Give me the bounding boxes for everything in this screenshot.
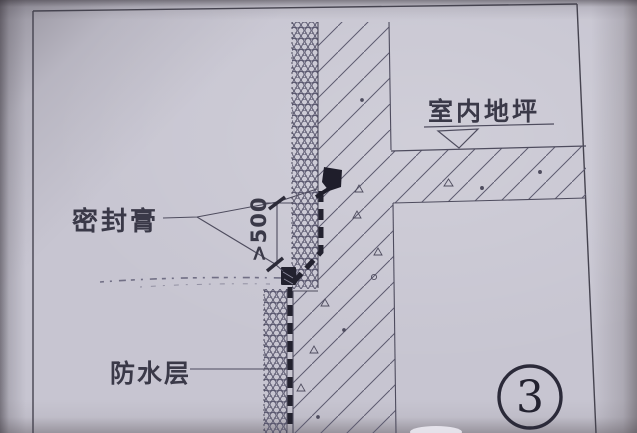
detail-number-text: 3 — [516, 372, 544, 423]
detail-circle: 3 — [499, 366, 561, 428]
waterproof-label: 防水层 — [110, 359, 191, 388]
page-border-top — [33, 4, 577, 11]
joint-dotted-line — [100, 278, 282, 288]
indoor-floor-label: 室内地坪 — [428, 97, 540, 126]
insulation-strip-upper — [292, 22, 318, 289]
sealant-joint-block — [281, 267, 296, 285]
level-symbol — [424, 124, 554, 148]
sealant-label: 密封膏 — [72, 206, 159, 237]
insulation-strip-lower — [264, 289, 287, 433]
page-border-right — [577, 4, 596, 433]
detail-drawing: >500 3 密封膏 室内地坪 防水层 — [0, 0, 637, 433]
floor-slab-section — [391, 146, 586, 203]
construction-detail-photo: >500 3 密封膏 室内地坪 防水层 — [0, 0, 637, 433]
dimension-500: >500 — [247, 197, 293, 271]
photo-highlight — [410, 426, 462, 433]
dimension-label: >500 — [247, 197, 271, 262]
level-symbol-triangle — [438, 129, 478, 148]
